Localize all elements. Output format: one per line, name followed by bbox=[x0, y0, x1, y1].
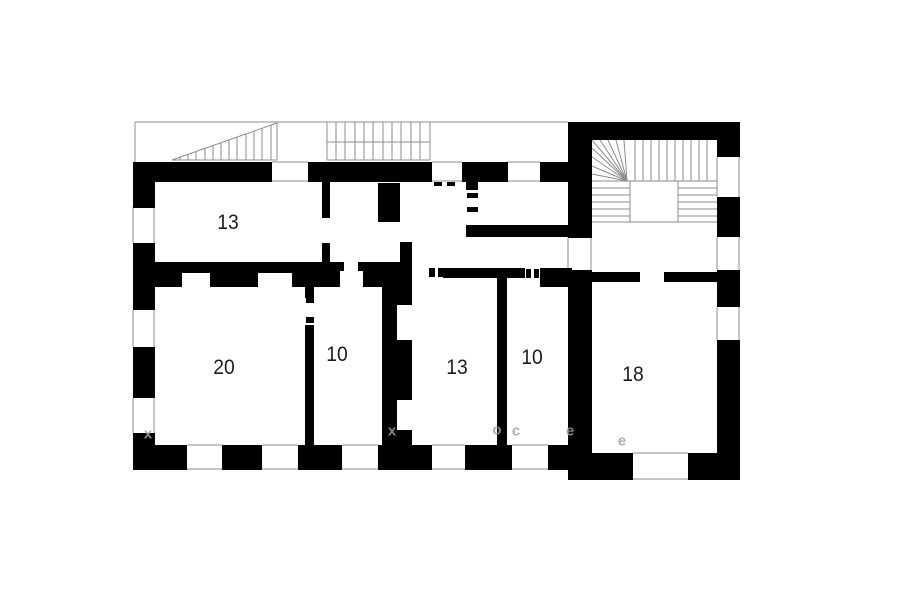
watermark-layer: xxocee bbox=[0, 0, 900, 604]
watermark-letter: x bbox=[388, 423, 396, 440]
watermark-letter: x bbox=[144, 426, 152, 443]
floor-plan: 132010131018 xxocee bbox=[0, 0, 900, 604]
watermark-letter: e bbox=[566, 423, 574, 440]
watermark-letter: e bbox=[618, 433, 626, 450]
watermark-letter: o bbox=[492, 422, 501, 439]
watermark-letter: c bbox=[512, 423, 520, 440]
